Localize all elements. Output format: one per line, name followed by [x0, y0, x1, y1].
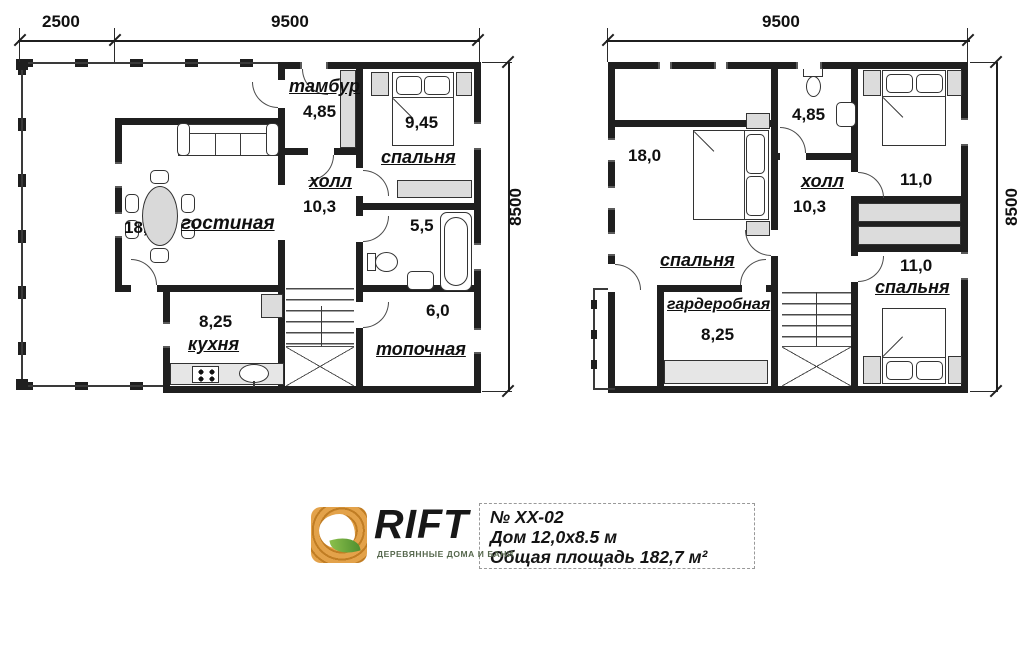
- wall-segment: [356, 242, 363, 285]
- sofa-armrest: [266, 123, 279, 156]
- wall-segment: [851, 282, 858, 386]
- window: [714, 62, 728, 69]
- balcony-post: [591, 330, 597, 339]
- blanket-line: [744, 130, 745, 220]
- room-area-bedroom-bottom-right: 11,0: [900, 256, 932, 276]
- bathtub-inner: [444, 217, 468, 286]
- total-area: Общая площадь 182,7 м²: [490, 547, 744, 567]
- window: [474, 243, 481, 271]
- wall-segment: [771, 62, 778, 230]
- sofa-cushion-divider: [215, 134, 216, 155]
- cupboard: [261, 294, 283, 318]
- room-area-boiler: 6,0: [426, 301, 450, 321]
- wall-segment: [356, 210, 363, 216]
- room-area-tambur: 4,85: [303, 102, 336, 122]
- wall-segment: [115, 285, 131, 292]
- wall-segment: [157, 285, 285, 292]
- terrace-corner: [16, 59, 28, 70]
- company-tagline: ДЕРЕВЯННЫЕ ДОМА И БАНИ: [377, 549, 514, 559]
- pillow: [886, 361, 913, 380]
- wall-segment: [657, 285, 742, 292]
- dimension-line: [606, 40, 970, 42]
- dining-chair: [150, 170, 169, 184]
- company-name: RIFT: [374, 501, 469, 548]
- door-arc: [858, 172, 884, 198]
- room-area-kitchen: 8,25: [199, 312, 232, 332]
- extension-line: [967, 28, 968, 62]
- door-arc: [363, 170, 389, 196]
- wall-segment: [608, 386, 968, 393]
- room-label-tambur: тамбур: [289, 76, 360, 97]
- wall-segment: [771, 256, 778, 386]
- wall-segment: [608, 62, 615, 393]
- wall-segment: [356, 203, 481, 210]
- room-area-wardrobe: 8,25: [701, 325, 734, 345]
- stair-rail: [321, 306, 322, 346]
- room-area-bathroom: 5,5: [410, 216, 434, 236]
- door-arc: [252, 82, 278, 108]
- extension-line: [19, 28, 20, 62]
- washbasin: [836, 102, 856, 127]
- dining-chair: [150, 248, 169, 263]
- stair-rail: [816, 292, 817, 346]
- wall-segment: [278, 62, 285, 80]
- terrace-line-left: [21, 64, 23, 386]
- window: [658, 62, 672, 69]
- wall-segment: [163, 386, 481, 393]
- wall-segment: [961, 62, 968, 393]
- sofa-cushion-divider: [240, 134, 241, 155]
- toilet-bowl: [806, 76, 821, 97]
- room-label-kitchen: кухня: [188, 334, 239, 355]
- dim-house-depth: 8500: [506, 177, 526, 237]
- room-area-bedroom: 9,45: [405, 113, 438, 133]
- wall-segment: [334, 148, 363, 155]
- nightstand: [746, 113, 770, 129]
- terrace-line-top: [20, 62, 281, 64]
- dining-chair: [125, 194, 139, 213]
- window: [115, 162, 122, 188]
- wall-segment: [115, 118, 122, 292]
- dim-house-depth: 8500: [1002, 177, 1022, 237]
- pillow: [916, 74, 943, 93]
- balcony-post: [591, 300, 597, 309]
- nightstand: [456, 72, 472, 96]
- sofa: [178, 124, 278, 156]
- window: [961, 118, 968, 146]
- window: [474, 328, 481, 354]
- nightstand: [371, 72, 389, 96]
- pillow: [916, 361, 943, 380]
- closet: [858, 203, 961, 222]
- dining-chair: [181, 194, 195, 213]
- window: [300, 62, 328, 69]
- room-label-living: гостиная: [181, 213, 275, 235]
- nightstand: [863, 356, 881, 384]
- window: [163, 322, 170, 348]
- window: [115, 212, 122, 238]
- dim-house-width: 9500: [762, 12, 800, 32]
- pillow: [746, 176, 765, 216]
- door-arc: [363, 216, 389, 242]
- wall-segment: [356, 328, 363, 386]
- room-label-hall: холл: [801, 171, 844, 192]
- room-label-bedroom-left: спальня: [660, 250, 735, 271]
- stair-cross: [286, 346, 354, 386]
- room-label-hall: холл: [309, 171, 352, 192]
- wall-segment: [278, 108, 285, 185]
- room-label-wardrobe: гардеробная: [667, 296, 770, 314]
- nightstand: [948, 356, 962, 384]
- window: [796, 62, 822, 69]
- dim-terrace-width: 2500: [42, 12, 80, 32]
- window: [608, 186, 615, 210]
- window: [608, 232, 615, 256]
- sofa-back-line: [190, 133, 266, 134]
- project-info-box: № ХХ-02 Дом 12,0х8.5 м Общая площадь 182…: [479, 503, 755, 569]
- sofa-armrest: [177, 123, 190, 156]
- toilet-bowl: [375, 252, 398, 272]
- stove: [192, 366, 219, 383]
- dimension-line: [18, 40, 480, 42]
- stair-cross: [782, 346, 851, 386]
- wall-segment: [771, 153, 780, 160]
- wall-segment: [281, 148, 308, 155]
- room-area-hall: 10,3: [303, 197, 336, 217]
- blanket-line: [882, 96, 946, 97]
- wardrobe-shelf: [664, 360, 768, 384]
- company-logo-icon: [311, 507, 367, 563]
- pillow: [746, 134, 765, 174]
- room-label-boiler: топочная: [376, 339, 466, 360]
- wall-segment: [356, 292, 363, 302]
- wall-segment: [851, 245, 968, 252]
- room-area-bedroom-top-right: 11,0: [900, 170, 932, 190]
- washbasin: [407, 271, 434, 290]
- extension-line: [114, 28, 115, 62]
- stair-treads: [286, 288, 354, 346]
- room-area-bedroom-left: 18,0: [628, 146, 661, 166]
- blanket-line: [882, 357, 946, 358]
- balcony-post: [591, 360, 597, 369]
- door-arc: [615, 264, 641, 290]
- door-arc: [780, 127, 806, 153]
- window: [608, 138, 615, 162]
- room-label-bedroom: спальня: [381, 147, 456, 168]
- house-size: Дом 12,0х8.5 м: [490, 527, 744, 547]
- dimension-line: [996, 62, 998, 392]
- terrace-line-bottom: [20, 385, 166, 387]
- pillow: [886, 74, 913, 93]
- project-number: № ХХ-02: [490, 507, 744, 527]
- room-area-hall: 10,3: [793, 197, 826, 217]
- room-label-bedroom-bottom-right: спальня: [875, 277, 950, 298]
- balcony-line: [593, 388, 615, 390]
- wall-segment: [657, 285, 664, 386]
- wardrobe: [397, 180, 472, 198]
- floorplan-sheet: тамбур 4,85 спальня 9,45 холл 10,3 гости…: [0, 0, 1033, 653]
- door-arc: [740, 259, 766, 285]
- terrace-corner: [16, 379, 28, 390]
- door-opening: [608, 264, 615, 292]
- extension-line: [479, 28, 480, 62]
- dim-house-width: 9500: [271, 12, 309, 32]
- wall-segment: [766, 285, 778, 292]
- extension-line: [607, 28, 608, 62]
- door-arc: [363, 302, 389, 328]
- pillow: [396, 76, 422, 95]
- window: [474, 122, 481, 150]
- sink-tap: [253, 381, 255, 387]
- blanket-line: [392, 97, 454, 98]
- dining-table: [142, 186, 178, 246]
- room-area-bathroom: 4,85: [792, 105, 825, 125]
- pillow: [424, 76, 450, 95]
- nightstand: [947, 70, 962, 96]
- nightstand: [863, 70, 881, 96]
- closet: [858, 226, 961, 245]
- door-arc: [745, 230, 771, 256]
- window: [961, 252, 968, 280]
